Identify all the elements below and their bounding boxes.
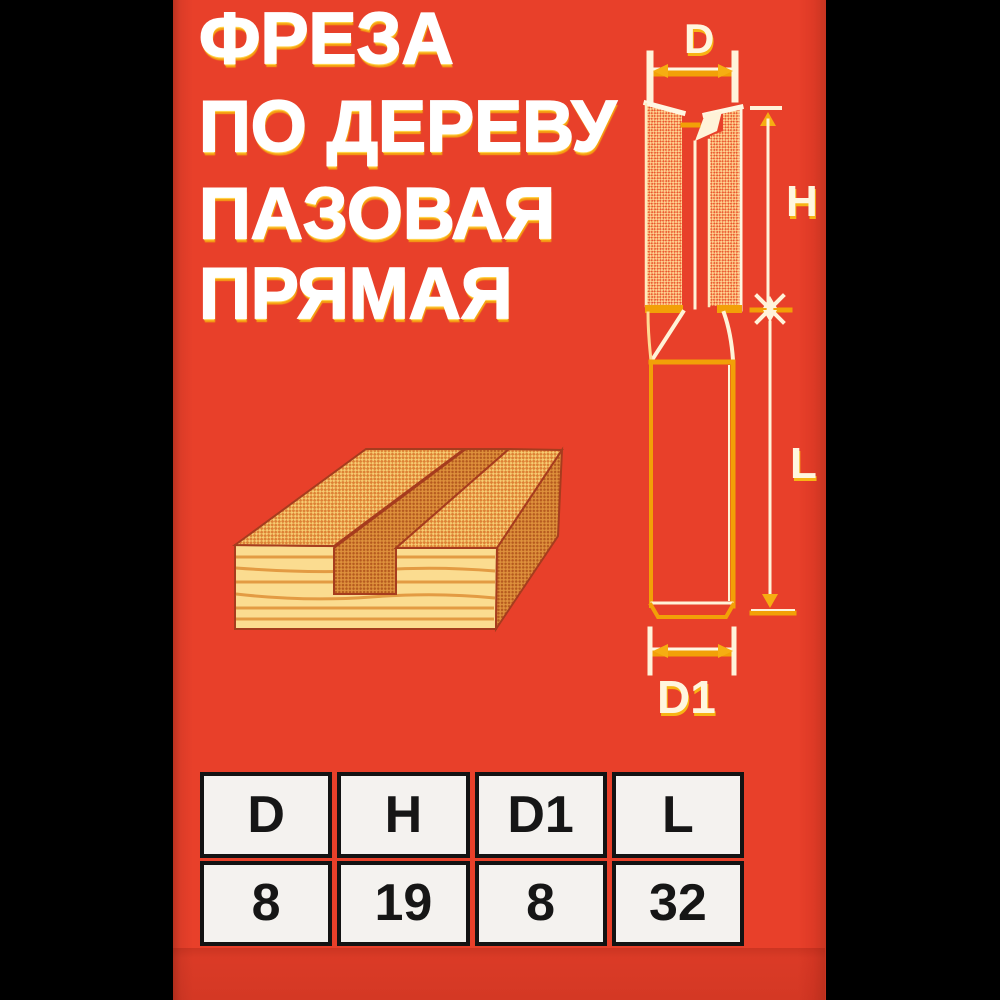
svg-text:D1: D1 — [657, 671, 716, 723]
svg-text:D: D — [684, 15, 714, 62]
svg-text:L: L — [790, 439, 817, 488]
svg-text:H: H — [786, 177, 818, 226]
